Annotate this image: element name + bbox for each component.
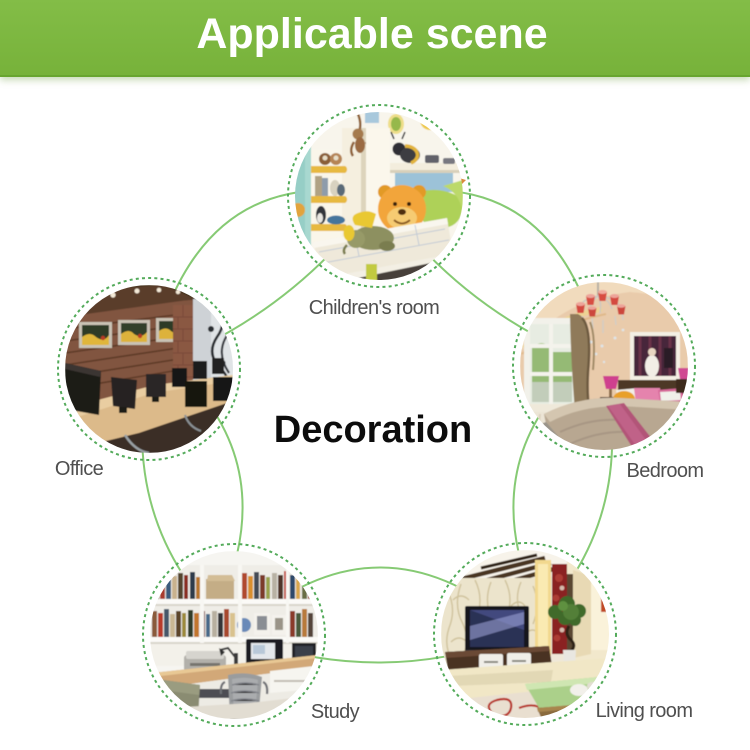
svg-text:Bedroom: Bedroom [627, 460, 704, 482]
svg-text:Children's room: Children's room [309, 297, 439, 319]
svg-text:Living room: Living room [596, 700, 693, 722]
svg-text:Office: Office [55, 458, 104, 480]
svg-text:Study: Study [311, 701, 360, 723]
svg-text:Decoration: Decoration [274, 409, 472, 451]
